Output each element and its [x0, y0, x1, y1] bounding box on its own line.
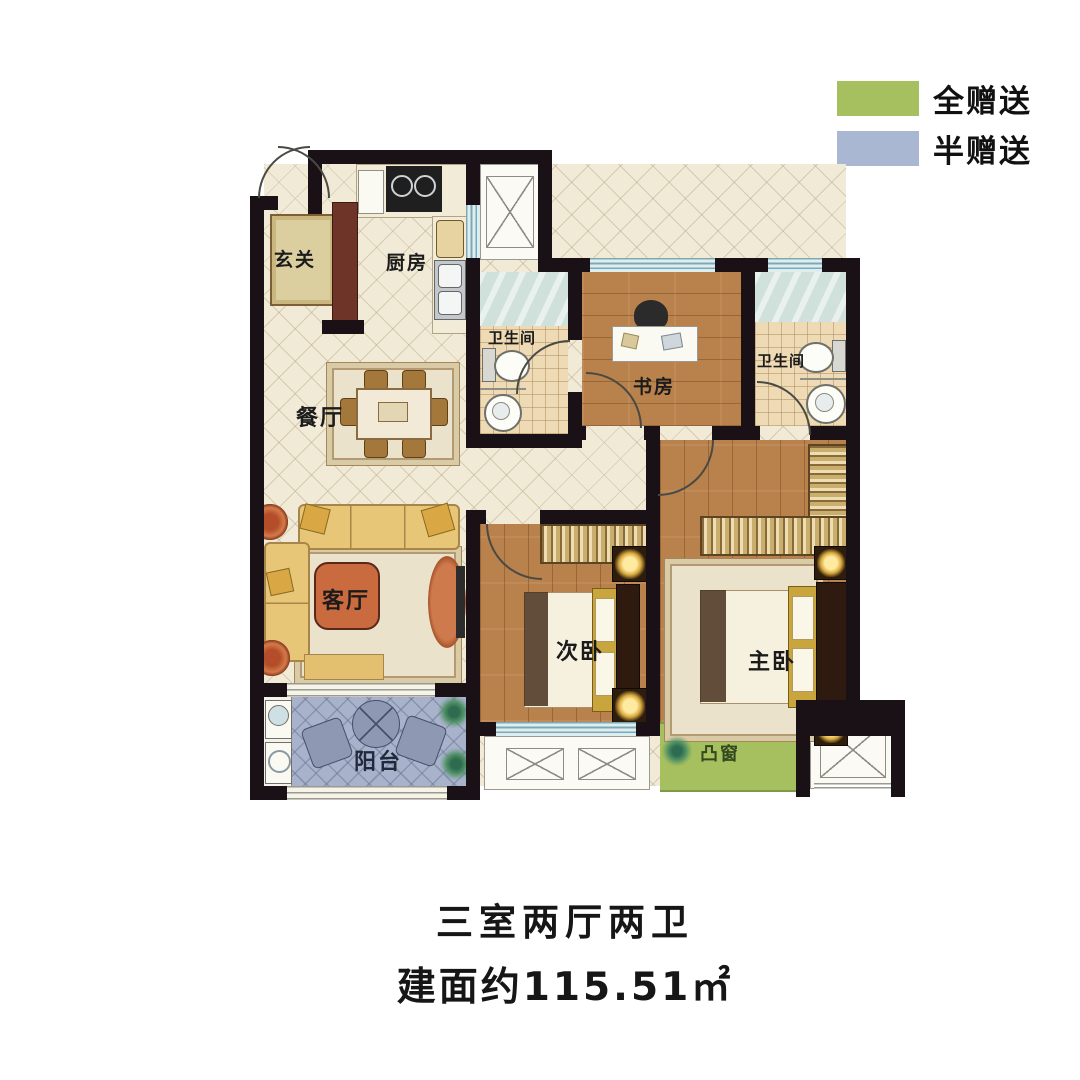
wall: [250, 786, 285, 800]
legend-item-half-gift: 半赠送: [837, 126, 1032, 171]
wash-basin-inner: [492, 402, 510, 420]
wall: [466, 164, 480, 205]
desk-item: [621, 332, 640, 349]
wall: [846, 258, 860, 728]
lamp: [615, 549, 645, 579]
tv-bench: [304, 654, 384, 680]
entry-door-arc: [258, 146, 310, 198]
table-centerpiece: [378, 402, 408, 422]
sofa-pillow: [266, 568, 294, 596]
fridge: [358, 170, 384, 214]
bath1-shower: [480, 272, 568, 328]
label-kitchen: 厨房: [386, 248, 428, 275]
label-bedroom2: 次卧: [556, 634, 604, 666]
window-symbol: [578, 748, 636, 780]
label-study: 书房: [633, 372, 675, 399]
wall: [250, 196, 264, 800]
pillow: [792, 596, 814, 640]
burner: [391, 175, 413, 197]
half-gift-label: 半赠送: [933, 126, 1032, 171]
floorplan-poster: 全赠送 半赠送: [0, 0, 1080, 1080]
cutting-board: [436, 220, 464, 258]
sink-basin: [438, 264, 462, 288]
window-symbol: [506, 748, 564, 780]
layout-title: 三室两厅两卫: [215, 892, 915, 946]
wall: [796, 700, 905, 736]
full-gift-swatch: [837, 81, 919, 116]
wall: [250, 683, 285, 697]
balcony-railing-window: [285, 786, 449, 800]
wall: [322, 150, 552, 164]
legend-item-full-gift: 全赠送: [837, 76, 1032, 121]
burner: [414, 175, 436, 197]
wall: [466, 258, 480, 448]
wall: [796, 714, 810, 797]
tv: [456, 566, 465, 638]
label-balcony: 阳台: [354, 744, 402, 776]
bed-fold: [524, 592, 548, 706]
kitchen-window: [466, 205, 480, 258]
wall: [712, 426, 760, 440]
wall: [466, 722, 496, 736]
lamp: [615, 691, 645, 721]
dining-chair: [402, 370, 426, 390]
dining-chair: [402, 438, 426, 458]
label-master: 主卧: [748, 644, 796, 676]
balcony-table: [352, 700, 400, 748]
nightstand: [612, 688, 648, 724]
nightstand: [612, 546, 648, 582]
wash-basin-inner: [815, 393, 834, 412]
bath2-window: [768, 258, 822, 272]
partition-wall: [332, 202, 358, 324]
plant: [662, 736, 692, 766]
wall: [636, 722, 660, 736]
study-window: [590, 258, 715, 272]
label-bath2: 卫生间: [757, 350, 805, 371]
bath2-shower: [755, 272, 846, 324]
wall: [644, 426, 660, 440]
bedroom2-window: [496, 722, 636, 736]
label-dining: 餐厅: [296, 400, 344, 432]
half-gift-swatch: [837, 131, 919, 166]
dining-chair: [364, 370, 388, 390]
dining-chair: [364, 438, 388, 458]
toilet-tank: [832, 340, 846, 372]
wardrobe: [808, 444, 850, 522]
wall: [810, 426, 860, 440]
label-bath1: 卫生间: [488, 327, 536, 348]
label-living: 客厅: [322, 583, 370, 615]
sink-basin: [438, 291, 462, 315]
lamp: [817, 549, 845, 577]
label-entry: 玄关: [274, 245, 316, 272]
area-title: 建面约115.51㎡: [215, 956, 915, 1012]
wall: [322, 320, 364, 334]
wall: [445, 786, 480, 800]
wall: [538, 150, 552, 272]
balcony-sliding-door: [285, 683, 437, 697]
full-gift-label: 全赠送: [933, 76, 1032, 121]
wall: [741, 258, 755, 440]
wall: [568, 426, 586, 440]
wall: [466, 510, 480, 800]
wall: [540, 510, 660, 524]
label-bay-window: 凸窗: [700, 740, 740, 766]
wall: [891, 700, 905, 797]
washer-door: [268, 750, 291, 773]
basin-bowl: [268, 705, 289, 726]
divider-line: [800, 378, 846, 380]
wall: [568, 258, 582, 340]
headboard: [816, 582, 848, 712]
title-block: 三室两厅两卫 建面约115.51㎡: [215, 892, 915, 1012]
nightstand: [814, 546, 848, 580]
wall: [466, 434, 582, 448]
ac-platform-top-symbol: [486, 176, 534, 248]
wall: [433, 683, 480, 697]
platform-edge-line: [814, 783, 891, 791]
bed-fold: [700, 590, 726, 702]
